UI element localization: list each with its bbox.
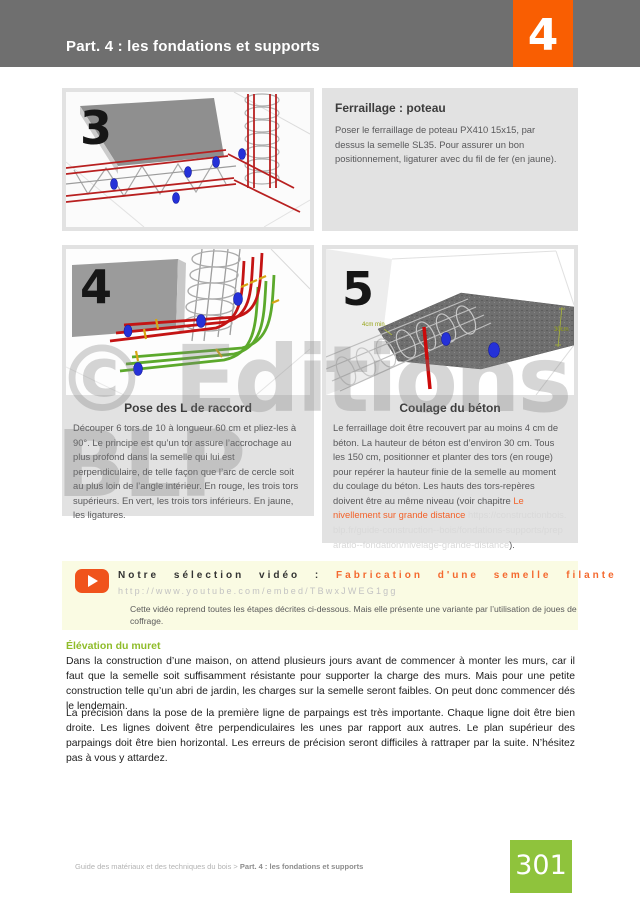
step4-illustration: 4 [66, 249, 310, 395]
step5-illustration: 4cm min. 30cm 5 [326, 249, 574, 395]
step3-body: Poser le ferraillage de poteau PX410 15x… [335, 123, 565, 167]
step3-illustration: 3 [66, 92, 310, 227]
breadcrumb-bold: Part. 4 : les fondations et supports [240, 862, 363, 871]
page-number-badge: 301 [510, 840, 572, 893]
section-heading: Élévation du muret [66, 640, 161, 652]
step5-body-close: ). [509, 539, 515, 550]
step5-title: Coulage du béton [322, 401, 578, 415]
step3-text-panel: Ferraillage : poteau Poser le ferraillag… [322, 88, 578, 231]
youtube-play-icon[interactable] [75, 569, 109, 593]
step5-dim-height: 30cm [554, 327, 569, 333]
step3-image-panel: 3 [62, 88, 314, 231]
step5-body: Le ferraillage doit être recouvert par a… [333, 421, 567, 552]
step4-title: Pose des L de raccord [62, 401, 314, 415]
video-title-line: Notre sélection vidéo : Fabrication d'un… [118, 570, 573, 581]
page-number: 301 [510, 852, 572, 879]
section-paragraph-2: La précision dans la pose de la première… [66, 707, 575, 767]
chapter-number: 4 [513, 14, 573, 58]
step4-number-label: 4 [80, 260, 112, 314]
step3-number-label: 3 [80, 101, 112, 155]
step5-dim-min-cover: 4cm min. [362, 322, 387, 328]
video-title: Fabrication d'une semelle filante [336, 570, 617, 581]
video-description: Cette vidéo reprend toutes les étapes dé… [130, 603, 578, 627]
page-header-bar: Part. 4 : les fondations et supports 4 [0, 0, 640, 67]
video-url[interactable]: http://www.youtube.com/embed/TBwxJWEG1gg [118, 586, 398, 596]
step4-body: Découper 6 tors de 10 à longueur 60 cm e… [73, 421, 303, 523]
step5-panel: 4cm min. 30cm 5 Coulage du béton Le ferr… [322, 245, 578, 543]
video-selection-box: Notre sélection vidéo : Fabrication d'un… [62, 561, 578, 630]
step5-number-label: 5 [342, 262, 374, 316]
step3-title: Ferraillage : poteau [335, 101, 565, 115]
step4-panel: 4 Pose des L de raccord Découper 6 tors … [62, 245, 314, 516]
breadcrumb-plain: Guide des matériaux et des techniques du… [75, 862, 240, 871]
page-header-title: Part. 4 : les fondations et supports [66, 38, 320, 55]
breadcrumb: Guide des matériaux et des techniques du… [75, 862, 363, 871]
section-paragraph-1: Dans la construction d’une maison, on at… [66, 655, 575, 715]
chapter-number-badge: 4 [513, 0, 573, 67]
step5-body-text: Le ferraillage doit être recouvert par a… [333, 422, 558, 506]
video-label: Notre sélection vidéo : [118, 570, 321, 581]
